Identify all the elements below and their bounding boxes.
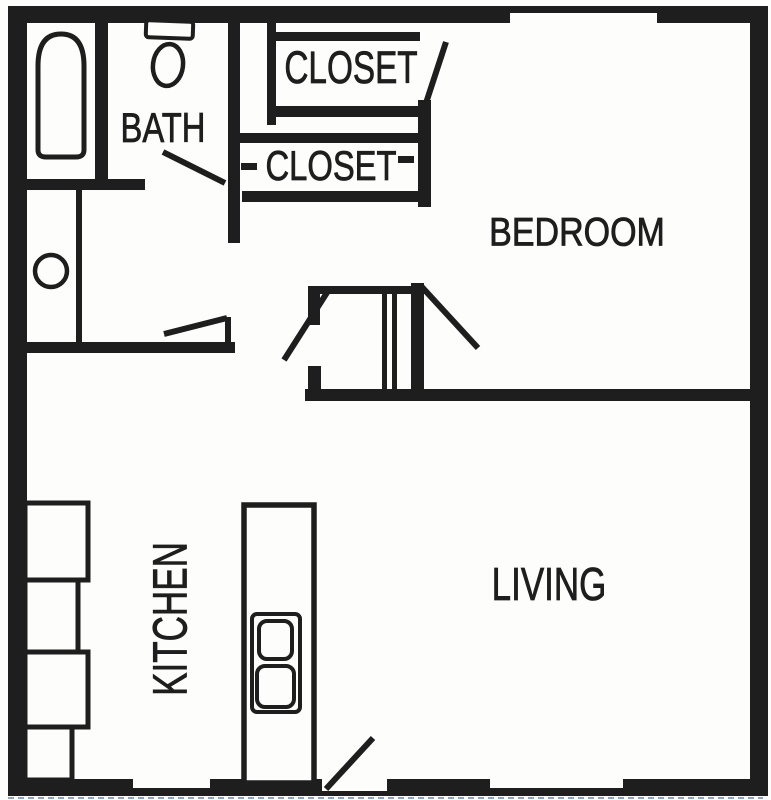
bath-door-leaf [163, 152, 225, 183]
tub-alcove-wall [95, 23, 108, 183]
upper-closet-door-leaf [426, 42, 446, 103]
bath-bottom-wall [27, 179, 145, 190]
floorplan-drawing [0, 0, 771, 800]
utility-closet-mid-b [392, 292, 397, 390]
kitchen-counter-4 [25, 727, 72, 780]
kitchen-counter-1 [25, 503, 88, 580]
hall-door-leaf [164, 318, 227, 334]
bedroom-living-divider-wall [305, 389, 750, 401]
burner-bottom-icon [257, 666, 294, 707]
burner-top-icon [259, 621, 292, 659]
bath-room-label: BATH [121, 104, 206, 152]
kitchen-counter-3 [25, 652, 88, 727]
lower-closet-label: CLOSET [265, 142, 396, 190]
right-wall [750, 6, 768, 796]
kitchen-room-label: KITCHEN [144, 542, 199, 696]
kitchen-counter-2 [25, 580, 78, 652]
bathtub-icon [38, 34, 84, 157]
upper-closet-shelf-bottom [273, 106, 424, 117]
toilet-tank-icon [146, 20, 194, 39]
lower-closet-bottom [242, 191, 427, 202]
utility-door-leaf-right [421, 286, 478, 348]
closet-right-wall [418, 100, 431, 207]
bottom-wall-d [623, 779, 768, 796]
living-window-bottom [490, 788, 623, 796]
bath-hall-wall [228, 23, 240, 243]
vanity-sink-icon [35, 255, 67, 287]
upper-closet-label: CLOSET [284, 42, 417, 94]
utility-closet-right [411, 283, 424, 394]
bedroom-room-label: BEDROOM [489, 211, 665, 256]
utility-door-leaf-left [284, 291, 328, 360]
upper-closet-shelf-top [273, 32, 420, 41]
floorplan-canvas: BATH CLOSET CLOSET BEDROOM KITCHEN LIVIN… [0, 0, 771, 800]
entry-threshold [322, 791, 387, 796]
closet-rod-dash-left [241, 163, 257, 170]
bottom-wall-c [387, 779, 490, 796]
bedroom-window-top [510, 6, 657, 13]
living-room-label: LIVING [492, 557, 607, 611]
utility-closet-stub [308, 366, 321, 392]
utility-closet-mid-a [382, 292, 387, 390]
top-wall-left [8, 6, 510, 23]
vanity-counter-edge [76, 188, 82, 344]
kitchen-window-bottom [133, 788, 210, 796]
closet-rod-dash-right [398, 156, 414, 163]
vanity-bottom-wall [27, 342, 235, 353]
toilet-bowl-icon [151, 42, 186, 87]
entry-door-leaf [326, 738, 373, 789]
